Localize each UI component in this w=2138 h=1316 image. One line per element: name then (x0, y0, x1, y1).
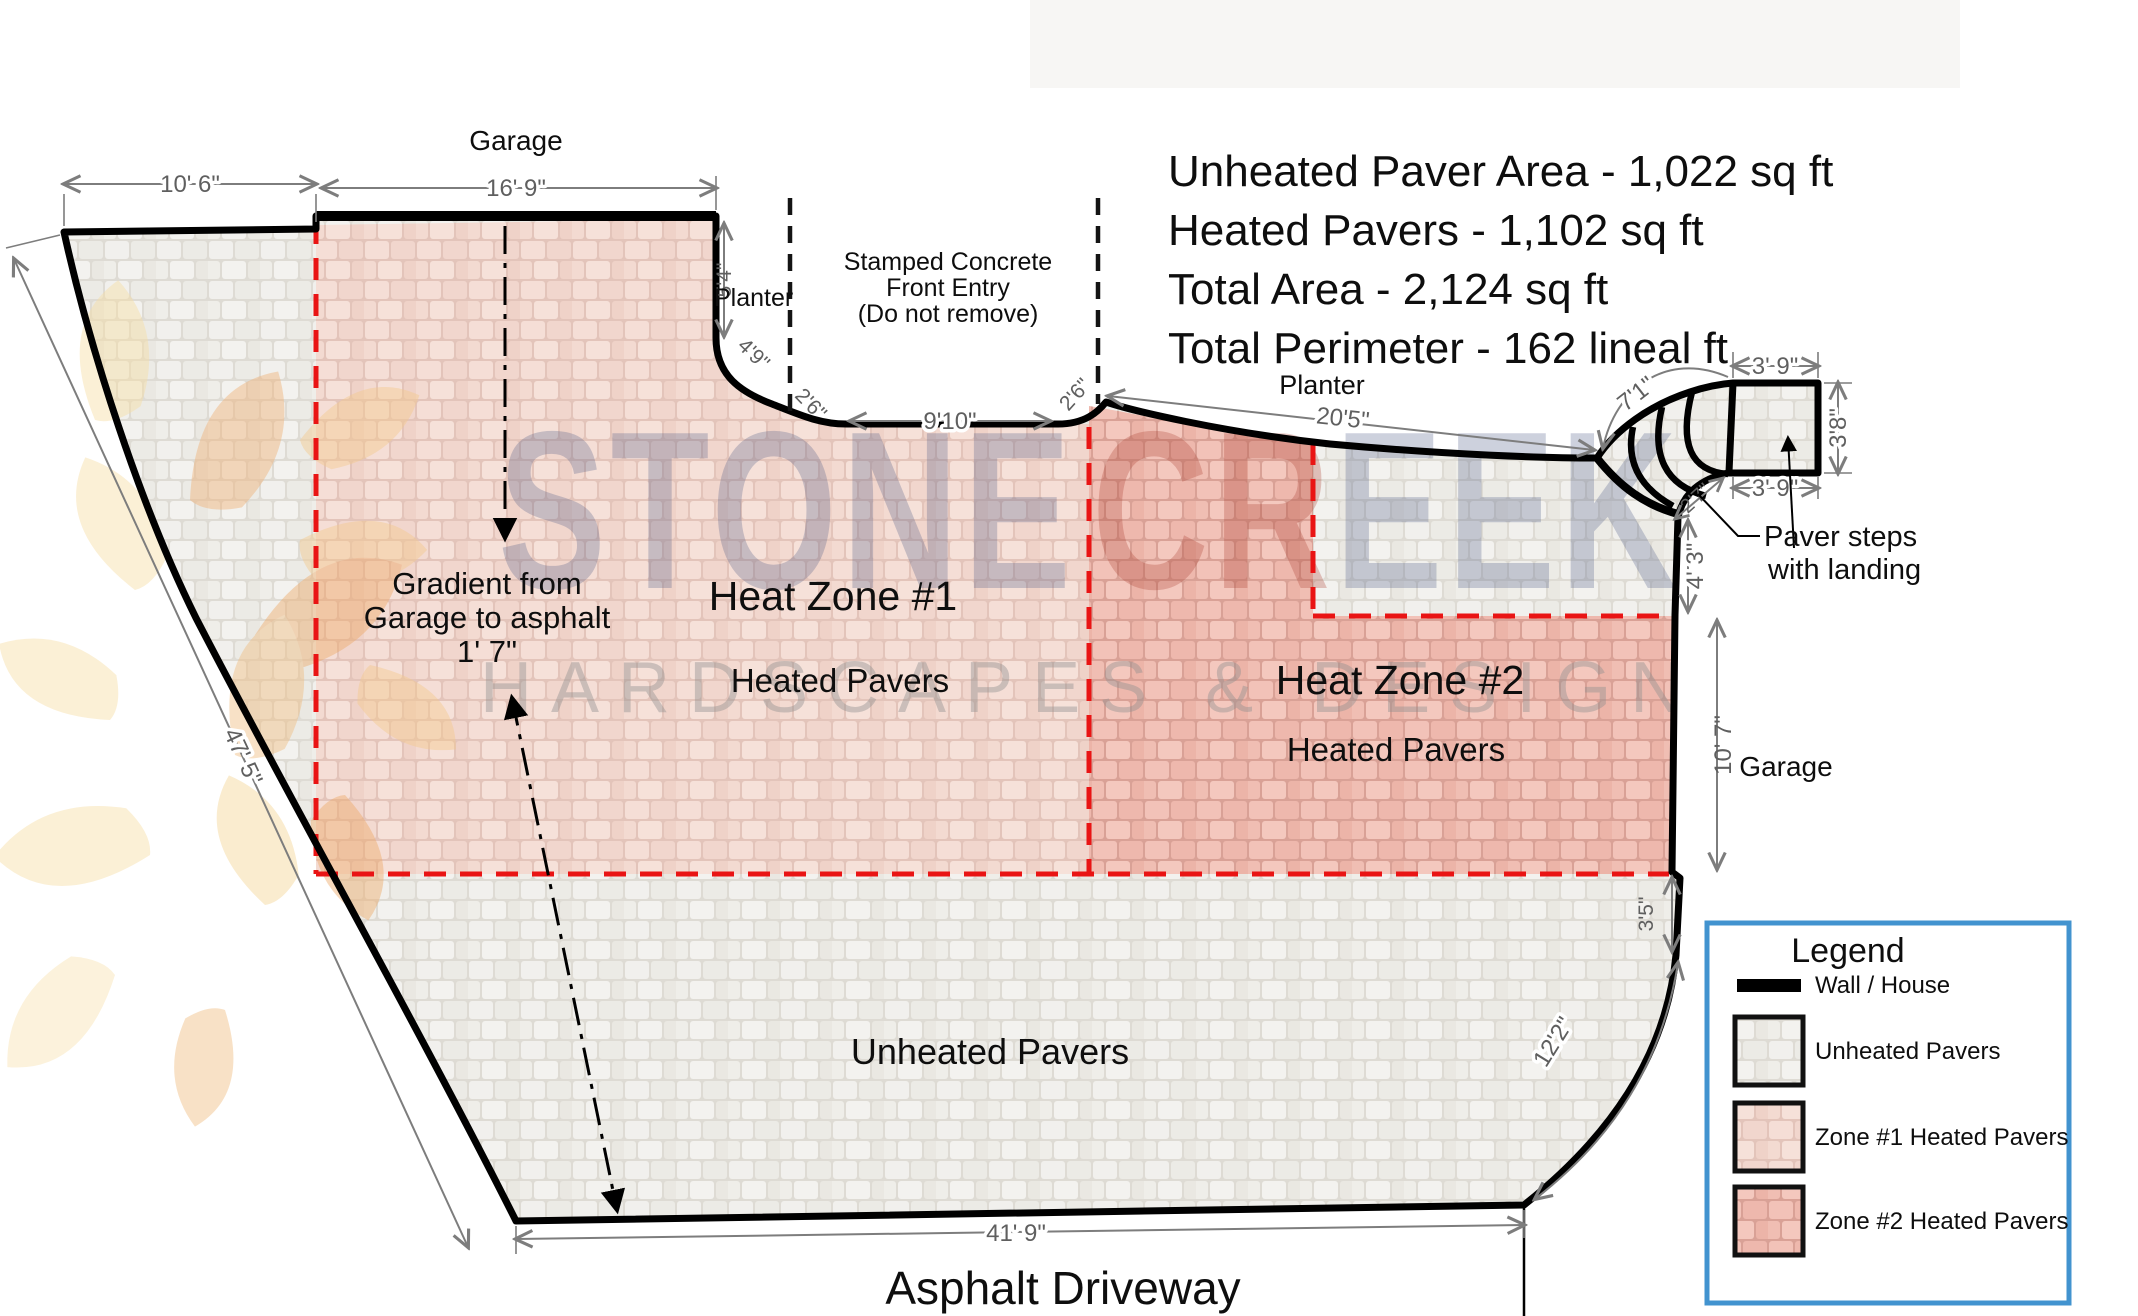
landing-left-edge (1729, 383, 1733, 472)
dim-4-3: 4' 3" (1682, 543, 1709, 589)
top-faint-shadow (1030, 0, 1960, 88)
heat-zone2-title: Heat Zone #2 (1276, 657, 1524, 703)
steps-label-line2: with landing (1767, 554, 1921, 586)
dim-3-5: 3'5" (1635, 897, 1658, 932)
legend-zone2-swatch (1735, 1187, 1803, 1255)
summary-total-perimeter: Total Perimeter - 162 lineal ft (1168, 324, 1728, 373)
site-plan-drawing: STONECREEK HARDSCAPES & DESIGN 10' 6" (0, 0, 2138, 1316)
legend-unheated-label: Unheated Pavers (1815, 1038, 2000, 1065)
gradient-label-line3: 1' 7" (457, 634, 517, 669)
legend-title: Legend (1791, 932, 1904, 970)
summary-total-area: Total Area - 2,124 sq ft (1168, 265, 1608, 314)
summary-heated-area: Heated Pavers - 1,102 sq ft (1168, 206, 1704, 255)
asphalt-driveway-label: Asphalt Driveway (885, 1262, 1240, 1314)
dim-16-9: 16' 9" (486, 175, 546, 202)
legend-wall-swatch (1737, 979, 1801, 992)
dim-9-10: 9'10" (923, 408, 976, 435)
planter-right-label: Planter (1279, 370, 1365, 400)
legend-unheated-swatch (1735, 1017, 1803, 1085)
dim-10-7: 10' 7" (1710, 715, 1737, 775)
heat-zone1-subtitle: Heated Pavers (731, 662, 949, 699)
entry-label-line3: (Do not remove) (858, 300, 1039, 328)
dim-20-5: 20'5" (1315, 402, 1371, 434)
steps-label-line1: Paver steps (1764, 521, 1917, 553)
site-plan-page: STONECREEK HARDSCAPES & DESIGN 10' 6" (0, 0, 2138, 1316)
dim-3-9-top: 3' 9" (1752, 353, 1798, 380)
entry-label-line1: Stamped Concrete (844, 248, 1052, 276)
dim-3-8: 3'8" (1825, 408, 1852, 448)
heat-zone1-title: Heat Zone #1 (709, 573, 957, 619)
garage-right-label: Garage (1739, 751, 1832, 782)
entry-label-line2: Front Entry (886, 274, 1010, 302)
dim-41-9: 41' 9" (986, 1220, 1046, 1247)
heat-zone2-subtitle: Heated Pavers (1287, 731, 1505, 768)
legend-zone1-label: Zone #1 Heated Pavers (1815, 1124, 2069, 1151)
legend-zone1-swatch (1735, 1103, 1803, 1171)
garage-top-label: Garage (469, 125, 562, 156)
brand-word-cr: CR (1092, 385, 1335, 636)
legend-zone2-label: Zone #2 Heated Pavers (1815, 1208, 2069, 1235)
dim-10-6: 10' 6" (160, 171, 220, 198)
unheated-pavers-label: Unheated Pavers (851, 1031, 1129, 1072)
gradient-label-line2: Garage to asphalt (364, 600, 611, 635)
summary-unheated-area: Unheated Paver Area - 1,022 sq ft (1168, 147, 1833, 196)
planter-left-label: Planter (714, 284, 793, 312)
gradient-label-line1: Gradient from (392, 566, 582, 601)
legend: Legend Wall / House Unheated Pavers Zone… (1707, 923, 2069, 1303)
legend-wall-label: Wall / House (1815, 972, 1950, 999)
